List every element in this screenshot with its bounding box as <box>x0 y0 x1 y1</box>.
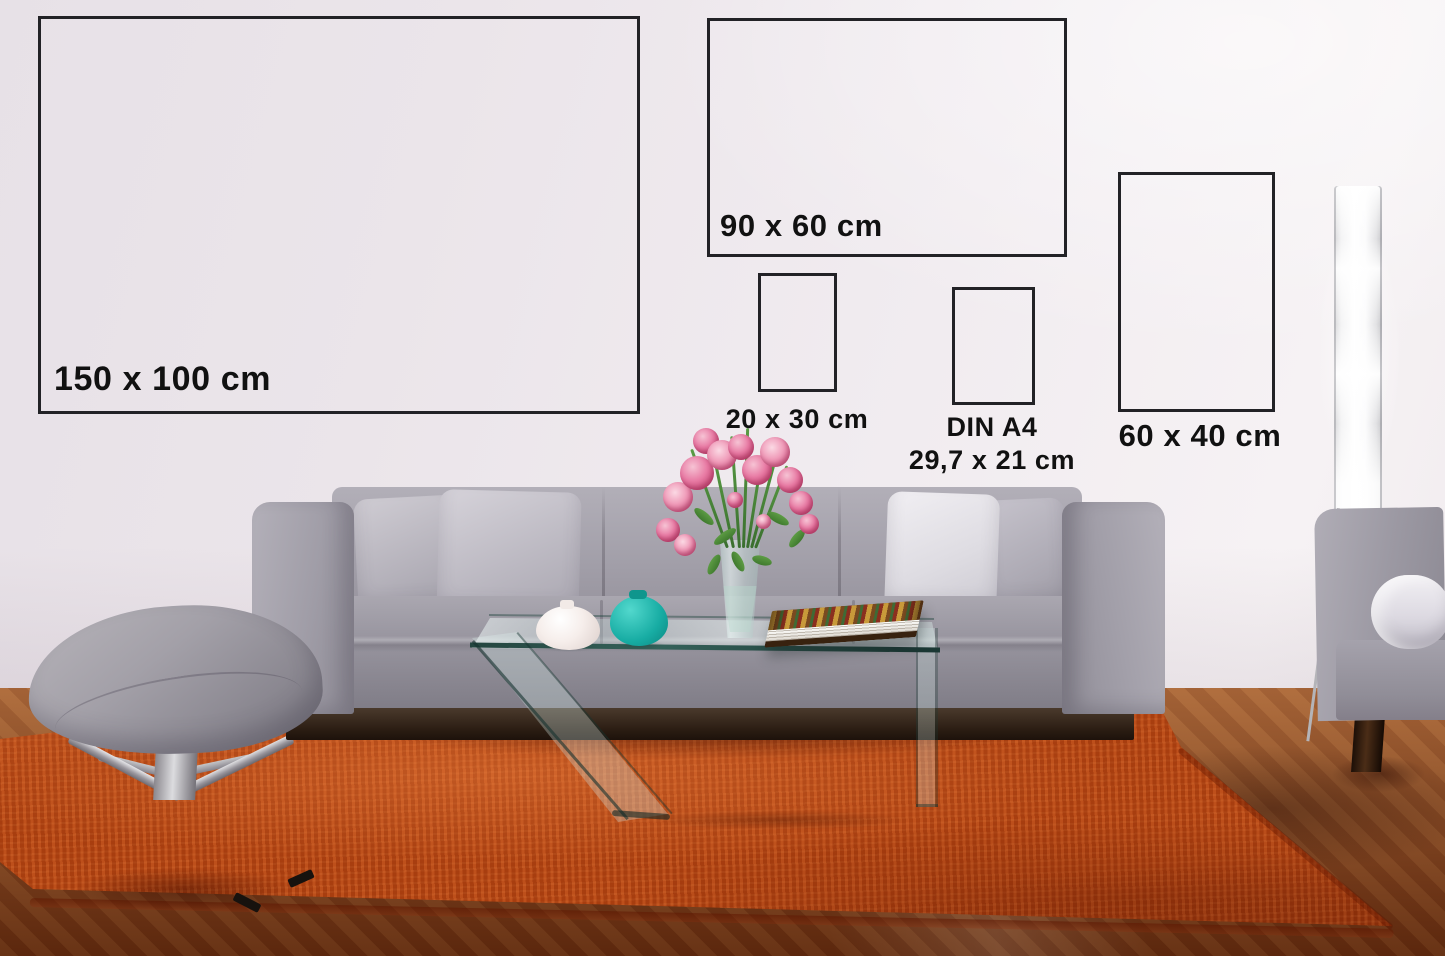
white-vase-neck <box>560 600 574 609</box>
flower-bloom <box>799 514 819 534</box>
sofa-plinth <box>286 708 1134 740</box>
floor-lamp <box>1334 186 1382 516</box>
size-label-din-a4-line2: 29,7 x 21 cm <box>884 444 1100 477</box>
size-label-20x30: 20 x 30 cm <box>690 404 904 435</box>
flower-bloom <box>756 514 771 529</box>
size-frame-20x30 <box>758 273 837 392</box>
white-vase <box>536 606 600 650</box>
size-frame-60x40 <box>1118 172 1275 412</box>
flower-bloom <box>674 534 696 556</box>
flower-bloom <box>760 437 790 467</box>
sofa-arm-right <box>1062 502 1165 714</box>
teal-vase <box>610 596 668 646</box>
size-label-din-a4-line1: DIN A4 <box>884 411 1100 444</box>
sofa-seat <box>340 596 1072 714</box>
flower-bloom <box>727 492 743 508</box>
flower-bloom <box>789 491 813 515</box>
flower-bloom <box>777 467 803 493</box>
size-label-60x40: 60 x 40 cm <box>1108 418 1292 454</box>
ottoman-shadow <box>28 858 340 920</box>
armchair-seat <box>1336 640 1445 720</box>
size-frame-din-a4 <box>952 287 1035 405</box>
living-room-size-guide: 150 x 100 cm 90 x 60 cm 20 x 30 cm DIN A… <box>0 0 1445 956</box>
table-glass-panel <box>916 628 938 807</box>
armchair-bolster-pillow <box>1371 575 1445 649</box>
armchair-leg <box>1351 716 1385 772</box>
size-label-150x100: 150 x 100 cm <box>54 360 271 399</box>
size-frame-150x100 <box>38 16 640 414</box>
size-label-din-a4: DIN A4 29,7 x 21 cm <box>884 411 1100 477</box>
size-label-90x60: 90 x 60 cm <box>720 208 883 244</box>
teal-vase-neck <box>629 590 647 599</box>
